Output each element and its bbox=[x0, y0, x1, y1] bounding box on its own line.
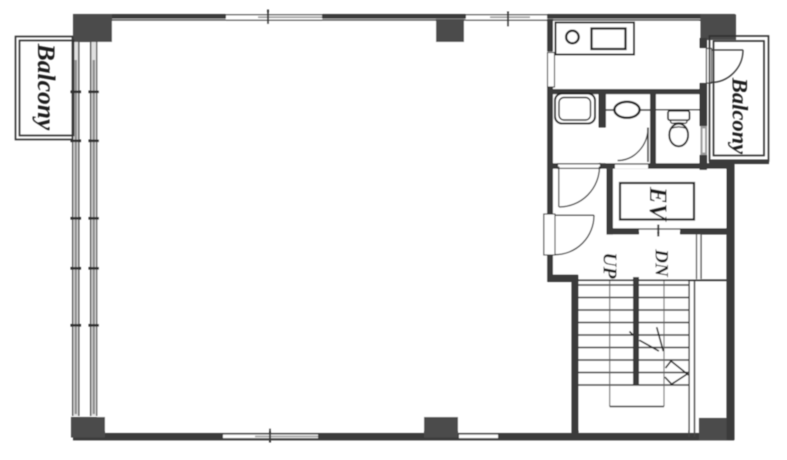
svg-text:Balcony: Balcony bbox=[32, 43, 61, 131]
svg-text:UP: UP bbox=[599, 253, 620, 280]
svg-text:EV: EV bbox=[644, 186, 671, 223]
svg-text:Balcony: Balcony bbox=[727, 77, 752, 155]
svg-text:DN: DN bbox=[650, 248, 671, 278]
